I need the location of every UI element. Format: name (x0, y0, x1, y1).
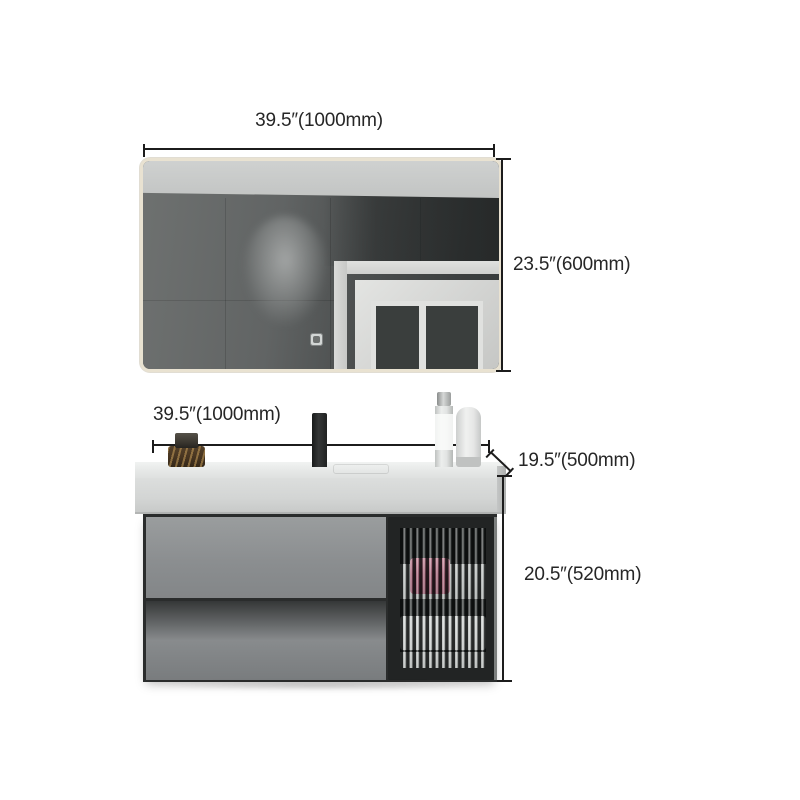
counter-front-face (135, 478, 506, 512)
cosmetic-bottle-label (435, 414, 453, 450)
integrated-sink-outline (333, 464, 389, 474)
window-mullion (419, 306, 426, 369)
mirror-height-label: 23.5″(600mm) (513, 254, 630, 276)
mirror-height-dimension-line (501, 158, 503, 372)
drawer-top (146, 517, 386, 598)
amber-jar (168, 446, 205, 467)
wall-tile-seam (225, 198, 226, 369)
fluted-glass-texture (400, 528, 486, 668)
cosmetic-bottle-cap (437, 392, 451, 406)
sink-countertop (135, 462, 506, 514)
cabinet-height-label: 20.5″(520mm) (524, 564, 641, 586)
cosmetic-bottle (435, 406, 453, 467)
window-reflection (371, 301, 483, 369)
cabinet-shadow (150, 681, 490, 690)
door-casing-top (334, 261, 499, 274)
black-faucet (312, 413, 327, 467)
wall-shadow-band (323, 194, 499, 266)
cream-tube (456, 407, 481, 467)
cream-tube-cap (456, 457, 481, 467)
fluted-glass-door (388, 517, 494, 680)
door-casing-side (334, 261, 347, 369)
mirror-touch-sensor-icon (310, 333, 323, 346)
drawer-bottom (146, 601, 386, 680)
vanity-depth-label: 19.5″(500mm) (518, 450, 635, 472)
vanity-width-label: 39.5″(1000mm) (153, 404, 281, 426)
glass-panel (400, 528, 486, 668)
product-dimension-figure: 39.5″(1000mm) 23.5″(600mm) 39.5″(1000mm) (0, 0, 800, 800)
mirror-ceiling-reflection (143, 161, 499, 198)
mirror-mist-patch (243, 216, 328, 326)
mirror (140, 158, 502, 372)
vanity-cabinet (143, 514, 497, 682)
cabinet-side-panel (494, 517, 497, 680)
cabinet-height-dimension-line (502, 475, 504, 682)
mirror-width-label: 39.5″(1000mm) (143, 110, 495, 132)
amber-jar-lid (175, 433, 198, 448)
mirror-width-dimension-line (143, 148, 495, 150)
